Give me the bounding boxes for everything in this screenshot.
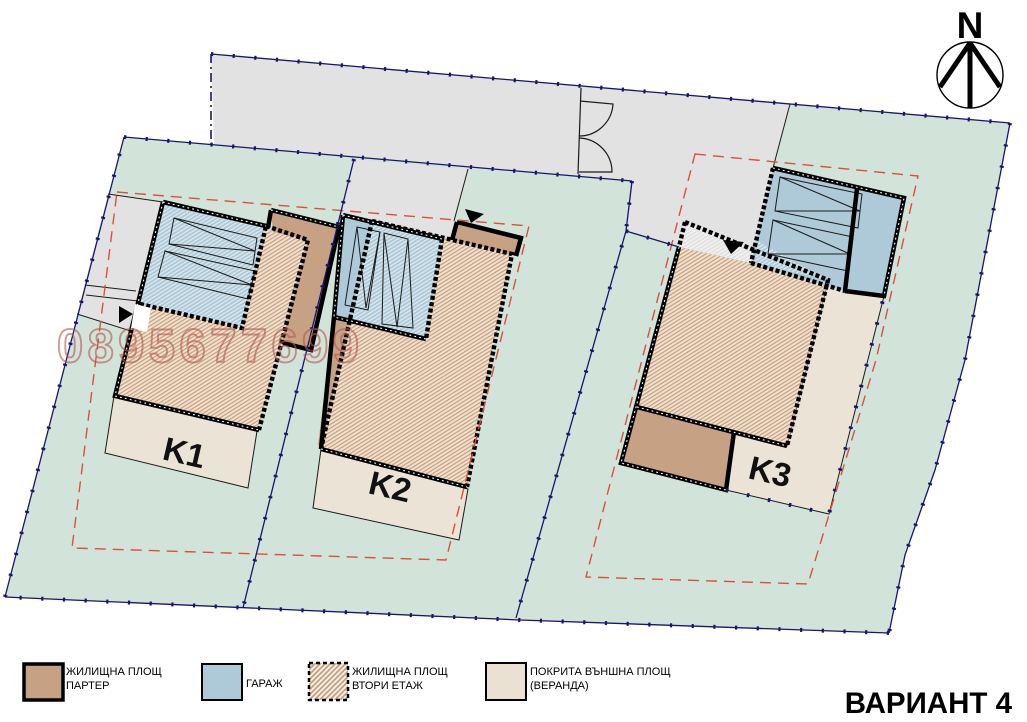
svg-text:(ВЕРАНДА): (ВЕРАНДА) — [530, 680, 589, 692]
svg-text:ЖИЛИЩНА ПЛОЩ: ЖИЛИЩНА ПЛОЩ — [66, 666, 162, 678]
svg-text:0895677699: 0895677699 — [57, 319, 363, 372]
svg-text:ВАРИАНТ 4: ВАРИАНТ 4 — [845, 687, 1013, 720]
svg-text:ГАРАЖ: ГАРАЖ — [246, 678, 283, 690]
svg-text:N: N — [957, 5, 984, 46]
svg-text:ПОКРИТА ВЪНШНА ПЛОЩ: ПОКРИТА ВЪНШНА ПЛОЩ — [530, 666, 671, 678]
svg-text:ЖИЛИЩНА ПЛОЩ: ЖИЛИЩНА ПЛОЩ — [352, 666, 448, 678]
svg-text:ПАРТЕР: ПАРТЕР — [66, 680, 109, 692]
svg-text:ВТОРИ ЕТАЖ: ВТОРИ ЕТАЖ — [352, 680, 423, 692]
